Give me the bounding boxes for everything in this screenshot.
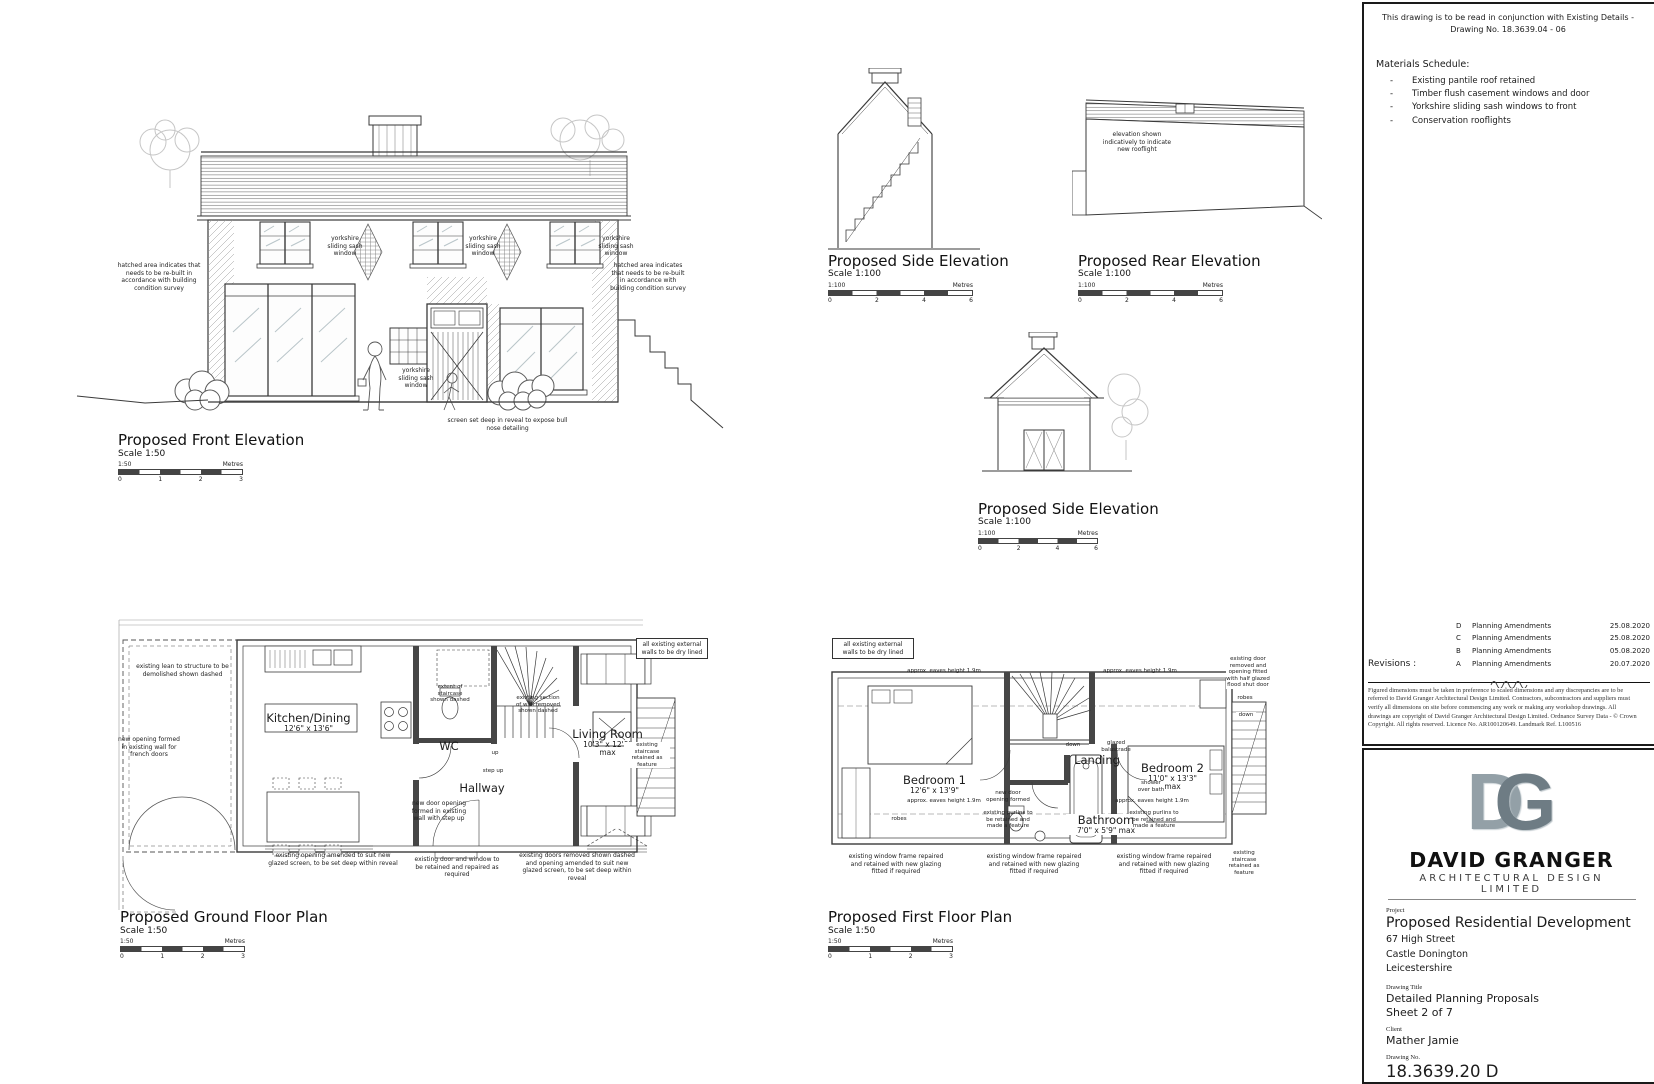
drawing-title-label: Drawing Title xyxy=(1386,984,1637,991)
materials-schedule: Materials Schedule: -Existing pantile ro… xyxy=(1376,59,1640,128)
door-retained-note: existing door and window to be retained … xyxy=(412,856,502,879)
bedroom1-label: Bedroom 112'6" x 13'9" xyxy=(892,774,977,795)
revision-row: BPlanning Amendments05.08.2020 xyxy=(1368,645,1650,657)
window-frame-note-1: existing window frame repaired and retai… xyxy=(848,853,944,876)
client-label: Client xyxy=(1386,1026,1637,1033)
retained-staircase xyxy=(1232,702,1266,814)
side-top-scale: Scale 1:100 xyxy=(828,269,881,279)
revision-row: DPlanning Amendments25.08.2020 xyxy=(1368,620,1650,632)
project-name: Proposed Residential Development xyxy=(1386,915,1637,931)
stair-feature-note-ff: existing staircase retained as feature xyxy=(1220,850,1268,876)
materials-item: -Existing pantile roof retained xyxy=(1376,75,1640,88)
door-side-window xyxy=(390,328,427,364)
roof xyxy=(197,152,631,220)
notes-panel: This drawing is to be read in conjunctio… xyxy=(1362,2,1654,746)
front-door xyxy=(427,304,487,402)
scale-bar-side-mid: 1:100Metres 0246 xyxy=(978,530,1098,552)
firm-subtitle: ARCHITECTURAL DESIGN LIMITED xyxy=(1386,873,1637,895)
door-removed-note: existing door removed and opening fitted… xyxy=(1226,656,1270,689)
title-block: DG DAVID GRANGER ARCHITECTURAL DESIGN LI… xyxy=(1362,748,1654,1084)
materials-item: -Timber flush casement windows and door xyxy=(1376,88,1640,101)
drawing-no-label: Drawing No. xyxy=(1386,1054,1637,1061)
rear-scale: Scale 1:100 xyxy=(1078,269,1131,279)
disclaimer: Figured dimensions must be taken in pref… xyxy=(1368,687,1640,730)
purlins-note-left: existing purlins to be retained and made… xyxy=(980,810,1036,830)
up-label: up xyxy=(488,750,502,757)
title-block-divider xyxy=(1388,899,1636,900)
sash-label-1: yorkshire sliding sash window xyxy=(322,235,368,258)
hob xyxy=(381,702,411,738)
chimney-cap xyxy=(869,68,901,73)
side-mid-scale: Scale 1:100 xyxy=(978,517,1031,527)
drawing-no-value: 18.3639.20 D xyxy=(1386,1062,1637,1081)
front-elevation-scale: Scale 1:50 xyxy=(118,449,165,459)
hallway-label: Hallway xyxy=(452,782,512,795)
ground-slope xyxy=(1304,206,1322,219)
tree-sketch-left xyxy=(140,120,199,188)
chimney xyxy=(1032,337,1054,349)
revisions-label: Revisions : xyxy=(1368,657,1456,673)
materials-item: -Conservation rooflights xyxy=(1376,115,1640,128)
tree-sketch xyxy=(1108,374,1148,460)
conjunction-note: This drawing is to be read in conjunctio… xyxy=(1382,12,1634,37)
drawing-sheet: { "views": { "front": {"title": "Propose… xyxy=(0,0,1654,1080)
drawing-title-value: Detailed Planning Proposals xyxy=(1386,992,1637,1005)
scale-bar-rear: 1:100Metres 0246 xyxy=(1078,282,1223,304)
first-plan-title: Proposed First Floor Plan xyxy=(828,908,1012,926)
doors-removed-note: existing doors removed shown dashed and … xyxy=(518,852,636,882)
decorative-flourish xyxy=(1368,673,1650,682)
ground-plan-scale: Scale 1:50 xyxy=(120,926,167,936)
side-elevation-mid-drawing xyxy=(972,332,1157,507)
hatched-note-left: hatched area indicates that needs to be … xyxy=(116,262,202,292)
stair-window xyxy=(908,98,921,126)
chimney xyxy=(369,116,421,156)
revision-row: Revisions :APlanning Amendments20.07.202… xyxy=(1368,657,1650,673)
dining-table xyxy=(267,792,359,842)
sofa-bottom xyxy=(587,806,645,836)
scale-ruler xyxy=(118,469,243,475)
logo-letter-g: G xyxy=(1494,762,1556,842)
scale-bar-front: 1:50Metres 0123 xyxy=(118,461,243,483)
sash-label-3: yorkshire sliding sash window xyxy=(594,235,638,258)
dry-lined-note-gf: all existing external walls to be dry li… xyxy=(636,638,708,659)
sash-label-2: yorkshire sliding sash window xyxy=(460,235,506,258)
robes-label-left: robes xyxy=(886,816,912,823)
sash-window-upper-2 xyxy=(410,222,466,268)
eaves-note-bl: approx. eaves height 1.9m xyxy=(900,798,988,805)
first-plan-scale: Scale 1:50 xyxy=(828,926,875,936)
glazed-balustrade-label: glazed balustrade xyxy=(1094,740,1138,753)
scale-bar-first: 1:50Metres 0123 xyxy=(828,938,953,960)
robes-right xyxy=(1200,680,1226,708)
kitchen-label: Kitchen/Dining12'6" x 13'6" xyxy=(256,712,361,733)
dg-logo: DG xyxy=(1386,762,1637,848)
external-steps xyxy=(618,320,723,428)
new-door-note-ff: new door opening formed xyxy=(984,790,1032,803)
hatched-note-right: hatched area indicates that needs to be … xyxy=(610,262,686,292)
scale-ratio: 1:50 xyxy=(118,461,131,468)
dry-lined-note-ff: all existing external walls to be dry li… xyxy=(832,638,914,659)
window-frame-note-2: existing window frame repaired and retai… xyxy=(986,853,1082,876)
down-label: down xyxy=(1062,742,1084,749)
gable-roof xyxy=(990,348,1098,398)
lean-to-note: existing lean to structure to be demolis… xyxy=(130,663,235,678)
french-doors-note: new opening formed in existing wall for … xyxy=(118,736,180,759)
screen-note: screen set deep in reveal to expose bull… xyxy=(440,417,575,432)
wc-label: WC xyxy=(434,740,464,753)
sheet-number: Sheet 2 of 7 xyxy=(1386,1006,1637,1019)
client-name: Mather Jamie xyxy=(1386,1034,1637,1047)
robes-label-right: robes xyxy=(1232,695,1258,702)
rear-title: Proposed Rear Elevation xyxy=(1078,252,1261,270)
window-frame-note-3: existing window frame repaired and retai… xyxy=(1116,853,1212,876)
glazed-screen xyxy=(221,284,359,401)
opening-amended-note: existing opening amended to suit new gla… xyxy=(268,852,398,867)
firm-name: DAVID GRANGER xyxy=(1386,848,1637,872)
eaves-note-tr: approx. eaves height 1.9m xyxy=(1096,668,1184,675)
materials-title: Materials Schedule: xyxy=(1376,59,1640,70)
scale-bar-side-top: 1:100Metres 0246 xyxy=(828,282,973,304)
sash-window-upper-1 xyxy=(257,222,313,268)
side-elevation-top-drawing xyxy=(828,68,988,258)
landing-label: Landing xyxy=(1068,754,1126,767)
sash-label-door: yorkshire sliding sash window xyxy=(396,367,436,390)
wall-removed-note: existing section of wall removed shown d… xyxy=(514,695,562,715)
eaves-note-tl: approx. eaves height 1.9m xyxy=(900,668,988,675)
side-mid-title: Proposed Side Elevation xyxy=(978,500,1159,518)
project-label: Project xyxy=(1386,907,1637,914)
new-door-note-gf: new door opening formed in existing wall… xyxy=(408,800,470,823)
newel xyxy=(1043,714,1057,738)
revision-row: CPlanning Amendments25.08.2020 xyxy=(1368,632,1650,644)
bedroom2-label: Bedroom 211'0" x 13'3"max xyxy=(1130,762,1215,791)
sink xyxy=(313,650,331,665)
lean-to-demolished xyxy=(123,640,237,912)
rooflight-note: elevation shown indicatively to indicate… xyxy=(1096,131,1178,154)
chimney-cap xyxy=(1029,332,1057,337)
scale-bar-ground: 1:50Metres 0123 xyxy=(120,938,245,960)
eaves-note-br: approx. eaves height 1.9m xyxy=(1108,798,1196,805)
down-label-2: down xyxy=(1236,712,1256,719)
ground-plan-title: Proposed Ground Floor Plan xyxy=(120,908,328,926)
stair-extent-note: extent of staircase shown dashed xyxy=(430,684,470,704)
stair-feature-note-gf: existing staircase retained as feature xyxy=(624,742,670,768)
materials-item: -Yorkshire sliding sash windows to front xyxy=(1376,101,1640,114)
project-address: 67 High Street Castle Donington Leiceste… xyxy=(1386,933,1637,977)
rear-elevation-drawing xyxy=(1072,75,1322,240)
basin xyxy=(1035,831,1045,841)
scale-unit: Metres xyxy=(223,461,243,468)
side-top-title: Proposed Side Elevation xyxy=(828,252,1009,270)
purlins-note-right: existing purlins to be retained and made… xyxy=(1126,810,1182,830)
front-elevation-title: Proposed Front Elevation xyxy=(118,431,304,449)
step-up-label: step up xyxy=(478,768,508,775)
revisions-table: DPlanning Amendments25.08.2020 CPlanning… xyxy=(1368,620,1650,730)
